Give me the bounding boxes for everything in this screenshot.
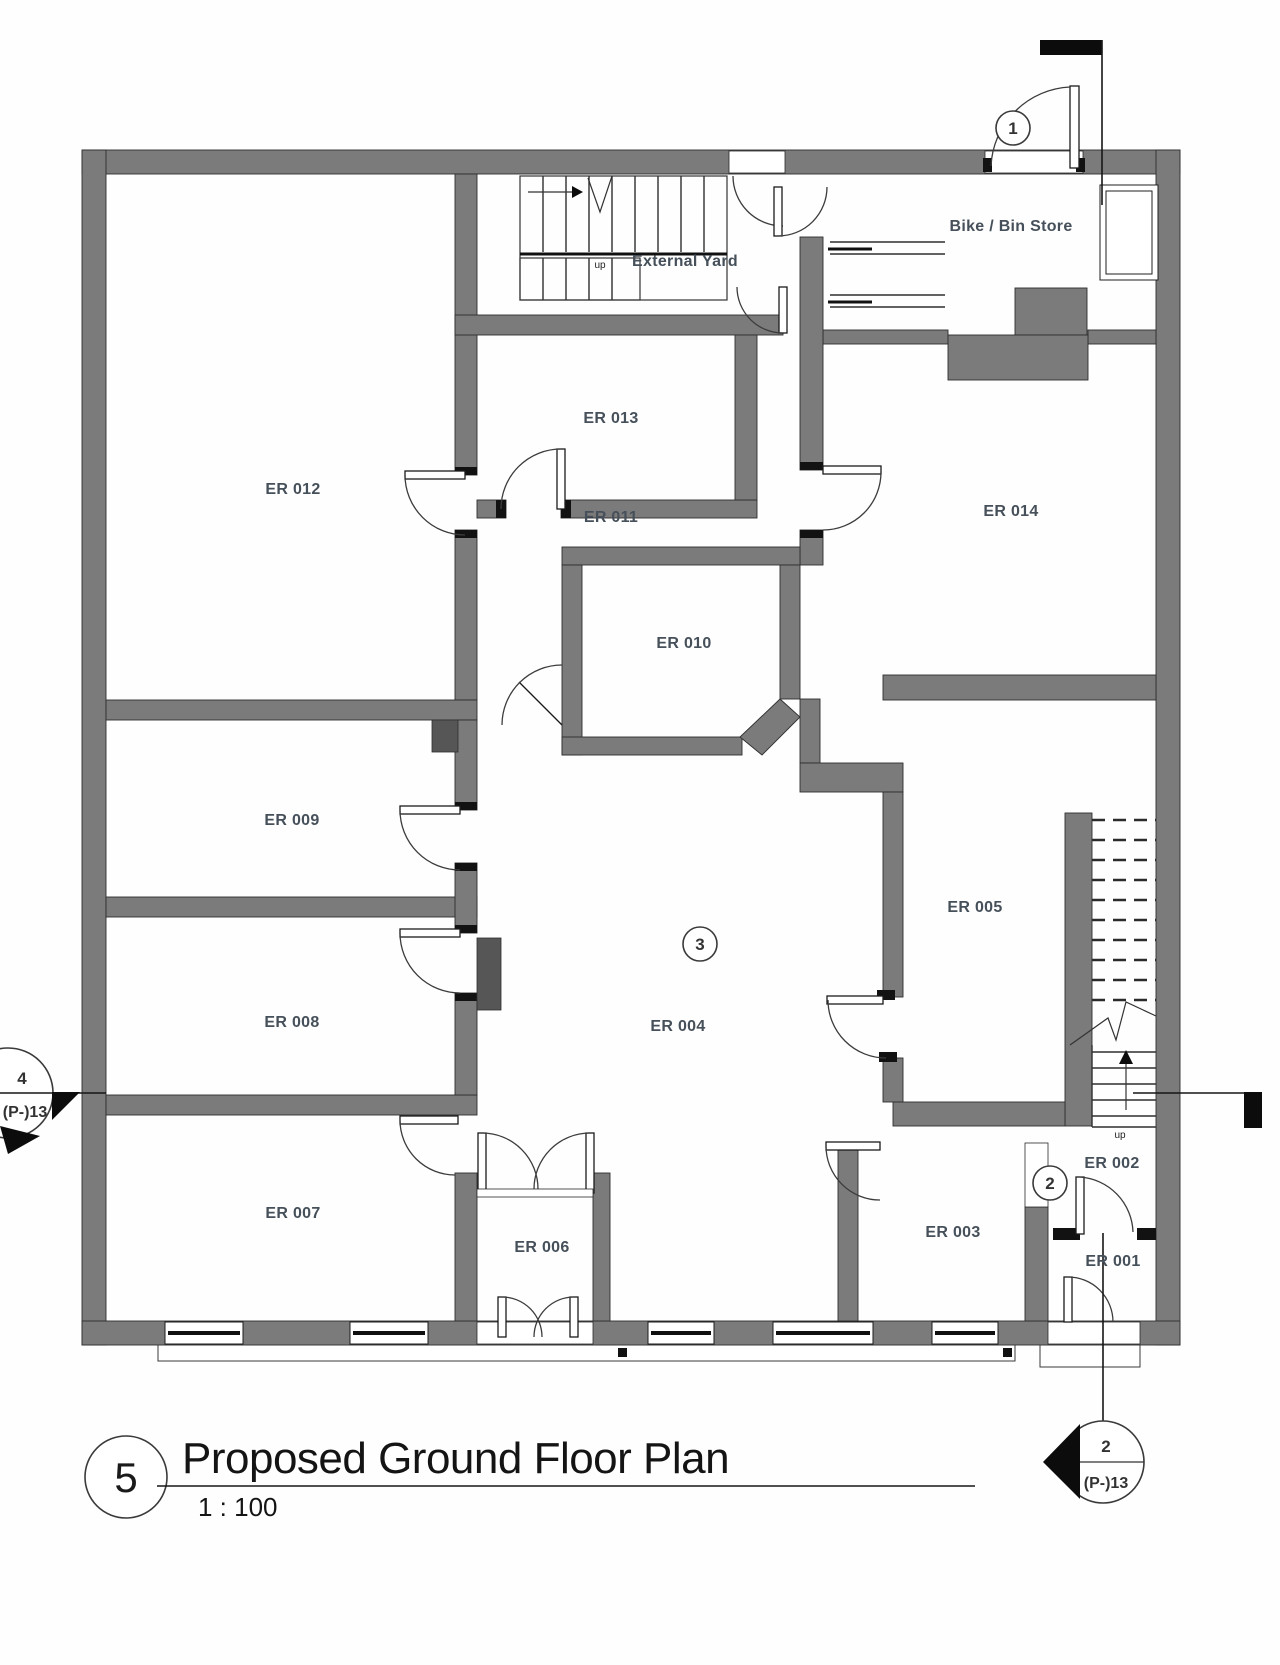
door-yard-to-bike-store bbox=[774, 187, 827, 236]
room-label-er007: ER 007 bbox=[265, 1205, 320, 1222]
hall-ref-number: 3 bbox=[695, 935, 704, 954]
section-left-sheet: (P-)13 bbox=[3, 1104, 48, 1121]
door-ref-bubble-1: 1 bbox=[996, 111, 1030, 145]
stair-up-arrow bbox=[1119, 1050, 1133, 1110]
room-label-er001: ER 001 bbox=[1085, 1253, 1140, 1270]
door-er007 bbox=[400, 1116, 458, 1175]
door-corridor-to-hall bbox=[502, 665, 562, 725]
drawing-title: Proposed Ground Floor Plan bbox=[182, 1434, 729, 1483]
door-er013 bbox=[501, 449, 565, 509]
area-label-external-yard: External Yard bbox=[632, 253, 738, 270]
door-er008 bbox=[400, 929, 460, 993]
section-left-number: 4 bbox=[17, 1069, 27, 1088]
door-ref-number: 1 bbox=[1008, 119, 1017, 138]
floor-plan-canvas: up up bbox=[0, 0, 1280, 1665]
double-door-er006-inner bbox=[477, 1133, 594, 1197]
room-label-er006: ER 006 bbox=[514, 1239, 569, 1256]
room-label-er011: ER 011 bbox=[584, 509, 638, 526]
stair-direction-arrow bbox=[528, 176, 612, 212]
window bbox=[165, 1322, 243, 1344]
stair-up-label: up bbox=[1114, 1130, 1126, 1141]
drawing-number: 5 bbox=[114, 1454, 137, 1501]
room-label-er009: ER 009 bbox=[264, 812, 319, 829]
area-label-bike-bin-store: Bike / Bin Store bbox=[949, 218, 1072, 235]
interior-walls bbox=[106, 174, 1156, 1321]
window bbox=[648, 1322, 714, 1344]
room-label-er013: ER 013 bbox=[583, 410, 638, 427]
section-marker-right-bar bbox=[1133, 1092, 1262, 1128]
exterior-ledge bbox=[158, 1345, 1140, 1367]
room-label-er008: ER 008 bbox=[264, 1014, 319, 1031]
section-marker-bottom-right: 2 (P-)13 bbox=[1043, 1233, 1144, 1503]
room-label-er010: ER 010 bbox=[656, 635, 711, 652]
drawing-scale: 1 : 100 bbox=[198, 1492, 278, 1522]
window bbox=[773, 1322, 873, 1344]
lobby-ref-number: 2 bbox=[1045, 1174, 1054, 1193]
door-er002-er001 bbox=[1076, 1177, 1133, 1234]
room-label-er004: ER 004 bbox=[650, 1018, 705, 1035]
room-label-er014: ER 014 bbox=[983, 503, 1038, 520]
room-label-er005: ER 005 bbox=[947, 899, 1002, 916]
door-er009 bbox=[400, 806, 460, 870]
bin-store-cupboard bbox=[1100, 185, 1158, 280]
room-label-er003: ER 003 bbox=[925, 1224, 980, 1241]
room-label-er002: ER 002 bbox=[1084, 1155, 1139, 1172]
stair-up-label: up bbox=[594, 260, 606, 271]
window bbox=[350, 1322, 428, 1344]
room-label-er012: ER 012 bbox=[265, 481, 320, 498]
section-bottom-number: 2 bbox=[1101, 1437, 1110, 1456]
section-bottom-sheet: (P-)13 bbox=[1084, 1475, 1129, 1492]
title-block: 5 Proposed Ground Floor Plan 1 : 100 bbox=[85, 1434, 975, 1522]
yard-staircase: up bbox=[520, 176, 727, 300]
door-er014 bbox=[823, 466, 881, 530]
lobby-ref-bubble-2: 2 bbox=[1033, 1166, 1067, 1200]
door-er005 bbox=[827, 990, 897, 1062]
door-er001-entrance bbox=[1064, 1277, 1113, 1322]
hall-ref-bubble-3: 3 bbox=[683, 927, 717, 961]
bike-racks bbox=[828, 242, 945, 307]
door-er012 bbox=[405, 471, 465, 535]
window bbox=[932, 1322, 998, 1344]
